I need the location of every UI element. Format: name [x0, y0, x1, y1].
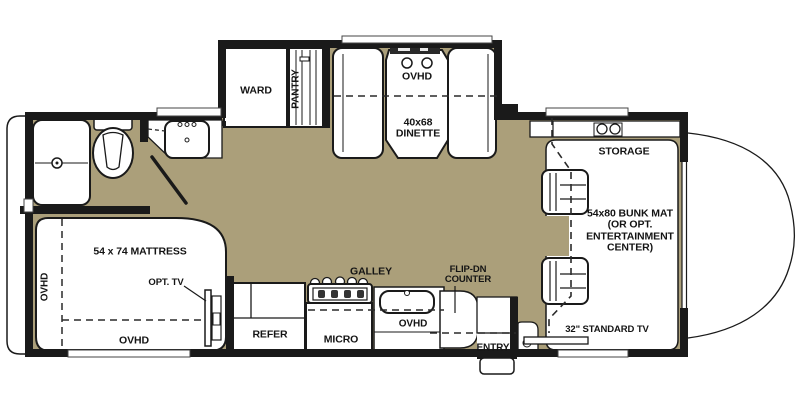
rv-floorplan: WARD PANTRY OVHD 40x68 DINETTE STORAGE 5… [0, 0, 800, 400]
reading-light-icon [422, 58, 432, 68]
dinette-label: 40x68 DINETTE [396, 118, 440, 141]
toilet-icon [93, 117, 133, 178]
cab-walkway [530, 216, 569, 256]
galley-label: GALLEY [350, 266, 392, 277]
passenger-seat [542, 258, 588, 304]
shower [33, 120, 90, 205]
reading-light-icon [402, 58, 412, 68]
bed [36, 218, 226, 351]
micro-label: MICRO [324, 334, 359, 345]
pantry-label: PANTRY [292, 69, 303, 108]
dinette-ovhd-label: OVHD [402, 71, 432, 82]
dinette [333, 46, 496, 158]
bunk-label: 54x80 BUNK MAT (OR OPT. ENTERTAINMENT CE… [586, 208, 674, 253]
galley-ovhd-label: OVHD [399, 320, 428, 331]
driver-seat [542, 170, 588, 214]
bed-ovhd-side-label: OVHD [41, 273, 52, 302]
stove [308, 277, 372, 303]
refrigerator [233, 283, 305, 352]
cab-hood [688, 133, 794, 338]
bedroom-tv-icon [205, 290, 221, 346]
standard-tv-label: 32" STANDARD TV [565, 325, 649, 335]
flip-counter-label: FLIP-DN COUNTER [445, 265, 491, 286]
refer-label: REFER [252, 329, 287, 340]
mattress-label: 54 x 74 MATTRESS [93, 246, 186, 257]
opt-tv-label: OPT. TV [148, 278, 183, 288]
cab-wall-opening [682, 162, 687, 308]
ward-label: WARD [240, 85, 272, 96]
entry-step [480, 358, 514, 374]
pantry-divider-wall [323, 46, 330, 128]
bed-ovhd-foot-label: OVHD [119, 335, 149, 346]
entry-label: ENTRY [476, 344, 509, 355]
flip-down-counter [440, 291, 478, 348]
storage-label: STORAGE [598, 146, 649, 157]
